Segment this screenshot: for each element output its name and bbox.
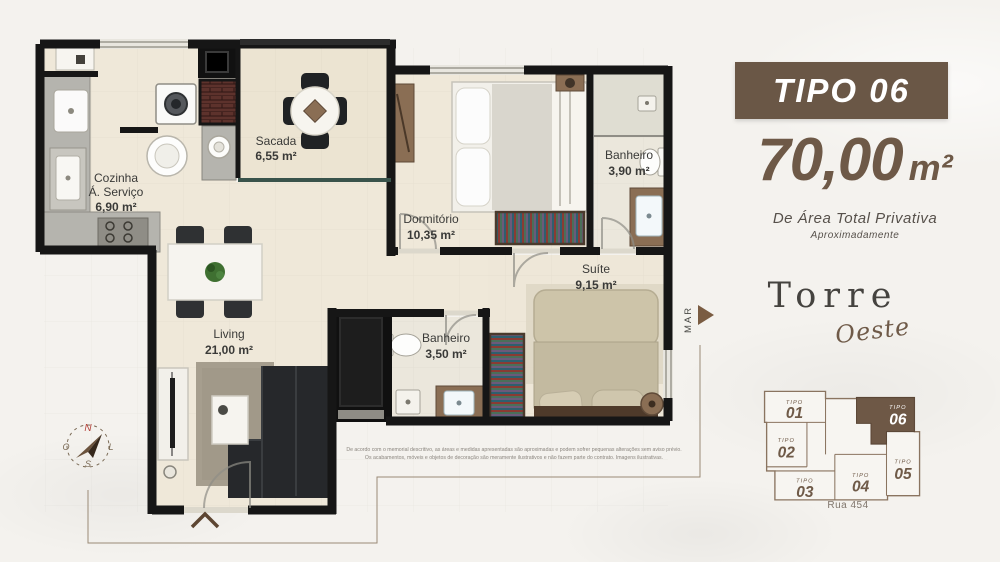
type-title-box: TIPO 06 [735,62,948,119]
area-unit: m² [909,147,953,188]
svg-text:01: 01 [786,405,803,422]
label-sacada: Sacada [256,134,297,148]
svg-text:03: 03 [796,484,814,501]
label-banheiro-2: Banheiro [422,331,470,345]
svg-text:06: 06 [889,411,907,428]
floor-plan: Cozinha Á. Serviço 6,90 m² Sacada 6,55 m… [0,0,730,562]
keyplan-unit-03: TIPO 03 [796,478,814,500]
svg-text:21,00 m²: 21,00 m² [205,343,253,357]
key-plan: TIPO 01 TIPO 02 TIPO 03 TIPO 04 TIPO 05 … [754,380,926,504]
vanity [630,188,668,246]
bedside-table [556,75,584,91]
label-living: Living [213,327,244,341]
sea-label: MAR [683,306,694,333]
svg-text:04: 04 [852,479,870,496]
svg-text:02: 02 [778,445,796,462]
svg-text:05: 05 [894,466,912,483]
stove [98,218,148,246]
svg-text:Á. Serviço: Á. Serviço [89,184,144,199]
svg-text:De acordo com o memorial descr: De acordo com o memorial descritivo, as … [346,447,681,453]
svg-text:TIPO: TIPO [778,438,795,444]
wardrobe-rack [496,212,584,244]
floor-lamp [164,466,176,478]
svg-text:6,90 m²: 6,90 m² [95,200,136,214]
svg-text:O: O [62,442,69,452]
total-area: 70,00m² [715,130,995,190]
svg-text:3,90 m²: 3,90 m² [608,164,649,178]
svg-text:N: N [84,423,92,434]
sea-arrow-icon [698,305,714,325]
laundry-tank [54,90,88,132]
suite-pillow [534,290,658,346]
svg-text:10,35 m²: 10,35 m² [407,228,455,242]
entrance-mark-icon [192,514,218,527]
upper-cabinet [56,48,94,70]
keyplan-unit-04: TIPO 04 [852,473,870,495]
keyplan-unit-01: TIPO 01 [786,400,803,422]
coffee-table [212,396,248,444]
sea-marker: MAR [683,305,714,333]
area-value: 70,00 [757,126,902,193]
double-bed [452,82,586,212]
area-note: Aproximadamente [725,230,985,241]
svg-text:9,15 m²: 9,15 m² [575,278,616,292]
type-title: TIPO 06 [773,72,910,110]
label-suite: Suíte [582,262,610,276]
label-dormitorio: Dormitório [403,212,459,226]
kitchen-sink [50,148,86,210]
area-caption: De Área Total Privativa [725,210,985,227]
service-shafts [198,46,238,180]
svg-text:S: S [85,459,91,469]
svg-text:TIPO: TIPO [889,405,906,411]
suite-rack [490,334,524,420]
utility-shaft [330,310,392,422]
keyplan-unit-05: TIPO 05 [894,460,912,484]
svg-text:TIPO: TIPO [894,460,911,466]
keyplan-unit-02: TIPO 02 [778,438,796,462]
tower-name: Torre [733,276,933,316]
svg-text:6,55 m²: 6,55 m² [255,149,296,163]
label-cozinha: Cozinha [94,171,138,185]
street-label: Rua 454 [768,500,928,511]
washing-machine [156,84,196,124]
keyplan-unit-06: TIPO 06 [889,405,907,429]
tv-rack [158,368,188,460]
svg-text:Os acabamentos, móveis e objet: Os acabamentos, móveis e objetos de deco… [365,455,663,461]
laundry-tub [147,136,187,176]
label-banheiro-1: Banheiro [605,148,653,162]
svg-text:3,50 m²: 3,50 m² [425,347,466,361]
vanity-2 [436,386,484,420]
svg-text:L: L [108,442,113,452]
